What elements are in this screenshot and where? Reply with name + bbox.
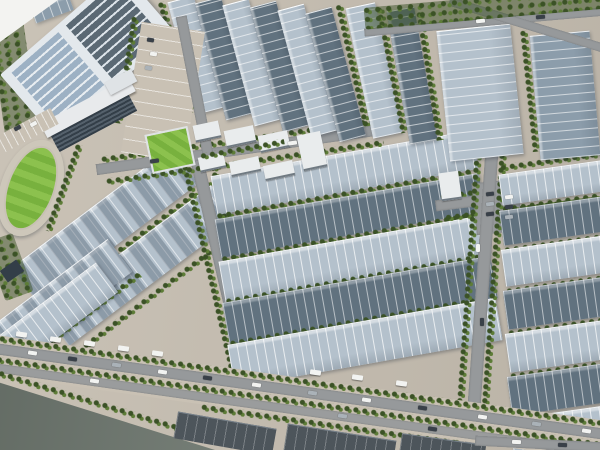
warehouse-roof [530,31,600,161]
campus-building [438,171,462,202]
car [512,440,521,444]
truck [118,345,130,351]
car [536,15,545,20]
car [476,19,485,24]
truck [152,350,164,356]
warehouse-roof [436,23,523,161]
car [476,244,480,252]
car [486,192,494,197]
car [486,202,494,207]
industrial-park-aerial-view [0,0,600,450]
car [480,318,484,326]
car [558,443,567,447]
car [486,212,494,217]
truck [310,369,322,375]
car [505,205,513,210]
car [505,215,513,220]
truck [396,380,408,386]
car [505,195,513,200]
truck [352,374,364,380]
